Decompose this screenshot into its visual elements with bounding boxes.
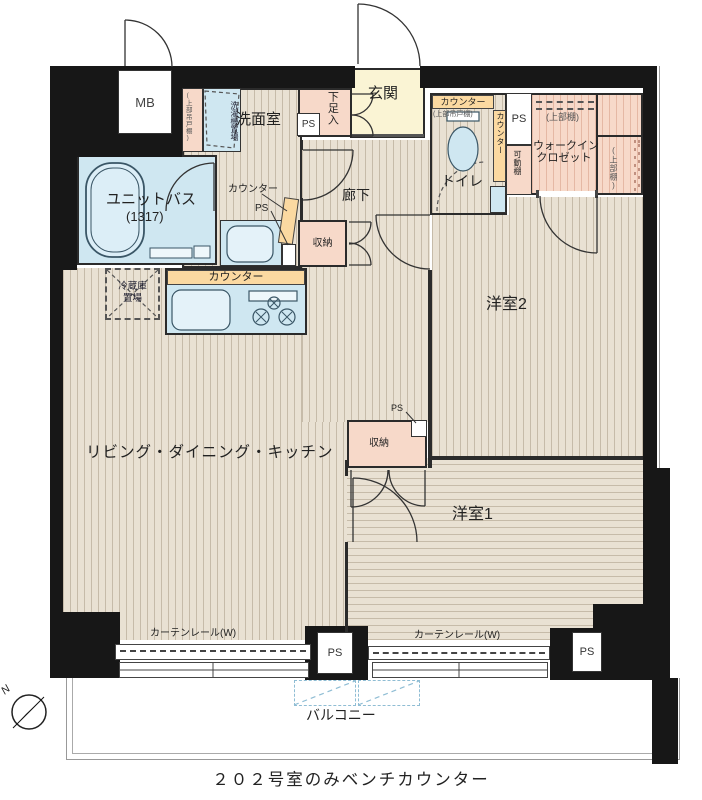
- toilet-label: トイレ: [441, 174, 483, 190]
- fridge-label-line2: 置場: [105, 293, 160, 305]
- toilet-counter-strip: カウンター: [432, 95, 494, 109]
- balcony-hatch-box-left: [294, 680, 356, 706]
- balcony-ps-right: PS: [572, 632, 602, 672]
- storage2-label: 収納: [347, 420, 411, 468]
- entrance-door-arc: [358, 4, 420, 66]
- wic-upper-shelf-right-label: (上部棚): [608, 146, 617, 191]
- washroom-counter-label: カウンター: [228, 184, 278, 195]
- curtain-rail-right-dash: [373, 652, 545, 654]
- bedroom2-floor: [432, 215, 643, 458]
- compass-needle: [13, 697, 44, 728]
- wic-shelf-hatch: [634, 140, 641, 192]
- shoe-cabinet-label: 下足入: [326, 91, 338, 126]
- balcony-ps-left: PS: [317, 632, 353, 674]
- bedroom2-floor-upper: [509, 197, 643, 219]
- meter-box-label: MB: [135, 95, 155, 110]
- kitchen-counter-strip: カウンター: [167, 270, 305, 285]
- plan-caption: ２０２号室のみベンチカウンター: [0, 766, 702, 790]
- storage2-ps-label: PS: [391, 403, 403, 413]
- unit-bath-label: ユニットバス: [106, 192, 196, 209]
- washroom-top-ps-label: PS: [302, 119, 315, 130]
- fridge-label-line1: 冷蔵庫: [105, 281, 160, 293]
- vanity: [220, 220, 282, 266]
- wall-ldk-bedroom1-lower: [345, 542, 348, 640]
- wic-door-trim-left: [536, 190, 539, 198]
- wall-hall-bedroom2: [428, 270, 432, 468]
- wall-right-lower: [643, 468, 670, 616]
- wall-washroom-hall-lower: [300, 198, 303, 222]
- toilet-counter-label: カウンター: [440, 97, 485, 107]
- curtain-rail-left-label: カーテンレール(W): [150, 628, 236, 639]
- wall-bottomright-step: [593, 604, 670, 630]
- wic-label-line1: ウォークイン: [533, 140, 595, 152]
- wall-bedroom1-bedroom2: [430, 456, 643, 460]
- hallway-floor: [302, 140, 430, 422]
- window-right: [372, 662, 548, 678]
- wall-top-right: [420, 66, 657, 88]
- genkan-label: 玄関: [368, 86, 398, 103]
- toilet-hand-basin: [490, 186, 506, 213]
- wic-door-gap: [538, 191, 597, 197]
- wall-bottomright-block: [550, 628, 670, 680]
- wic-label-line2: クロゼット: [533, 152, 595, 164]
- toilet-side-ps-label: PS: [512, 113, 527, 125]
- compass-circle: [12, 695, 46, 729]
- window-left: [119, 662, 309, 678]
- hallway-label: 廊下: [342, 188, 370, 204]
- bedroom2-label: 洋室2: [486, 296, 527, 314]
- washroom-ps-shaft: [282, 244, 296, 266]
- washer-label-col1: 洗濯機: [206, 101, 240, 125]
- curtain-rail-right: [368, 646, 550, 660]
- wic-door-trim-right: [595, 190, 598, 198]
- balcony-ps-right-label: PS: [580, 646, 595, 658]
- washer-label-col2: 置場: [206, 125, 240, 141]
- toilet-side-counter-label: カウンター: [495, 112, 504, 155]
- toilet-upper-shelf-label: (上部吊戸棚): [433, 111, 473, 119]
- toilet-side-ps: PS: [506, 93, 532, 145]
- curtain-rail-left: [115, 644, 311, 660]
- bedroom1-label: 洋室1: [452, 506, 493, 524]
- wic-divider-h: [597, 135, 643, 137]
- balcony-label: バルコニー: [306, 708, 376, 724]
- compass-needle-line: [13, 697, 44, 728]
- wall-bottomleft-block: [50, 612, 120, 678]
- compass: [12, 695, 46, 729]
- unit-bath-size-label: (1317): [126, 210, 164, 225]
- wic-upper-shelf-top-label: (上部棚): [546, 112, 579, 122]
- washroom-top-ps: PS: [297, 113, 320, 136]
- washroom-ps-label: PS: [255, 203, 268, 214]
- wall-washroom-hall-upper: [300, 140, 303, 150]
- wall-left-upper: [50, 157, 77, 270]
- fridge-label: 冷蔵庫 置場: [105, 281, 160, 306]
- wic-hanger-rod: [536, 101, 594, 110]
- ldk-label: リビング・ダイニング・キッチン: [86, 444, 334, 461]
- washer-label: 洗濯機 置場: [206, 92, 240, 150]
- washer-upper-shelf-label: (上部吊戸棚): [184, 92, 191, 142]
- wall-right-upper: [643, 88, 657, 468]
- balcony-hatch-box-right: [358, 680, 420, 706]
- floor-plan: カウンター カウンター MB PS PS PS PS: [0, 0, 702, 800]
- genkan-step-line: [352, 134, 424, 137]
- wall-left-lower: [50, 270, 63, 665]
- genkan: [350, 68, 425, 138]
- movable-shelf-label: 可動棚: [512, 150, 521, 176]
- wall-top-mid: [170, 66, 355, 88]
- compass-north-label: N: [0, 683, 13, 698]
- storage2-ps: [411, 420, 427, 437]
- curtain-rail-left-dash: [120, 650, 306, 652]
- curtain-rail-right-label: カーテンレール(W): [414, 630, 500, 641]
- storage1-label: 収納: [298, 220, 347, 267]
- kitchen-counter-label: カウンター: [209, 271, 264, 283]
- wall-balcony-column: [652, 678, 678, 764]
- meter-box: MB: [118, 70, 172, 134]
- balcony-ps-left-label: PS: [328, 647, 343, 659]
- mb-door-arc: [125, 20, 172, 67]
- washroom-label: 洗面室: [236, 112, 281, 129]
